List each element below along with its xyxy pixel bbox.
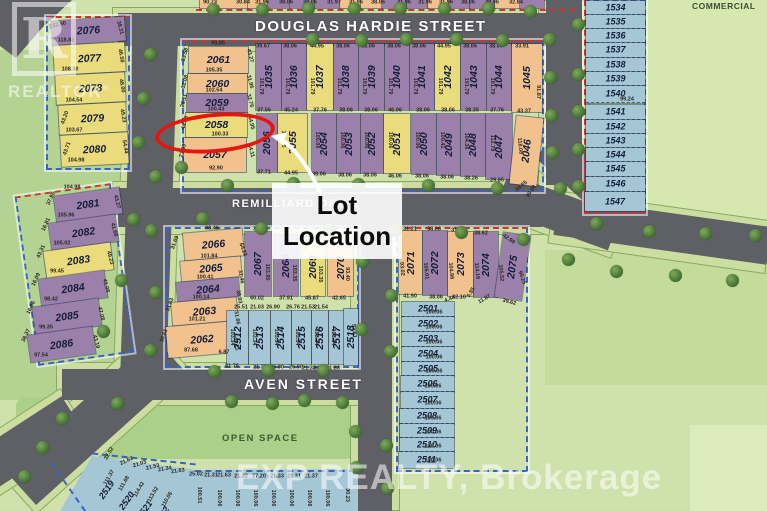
lot-location-line2: Location: [283, 221, 391, 252]
lot-location-line1: Lot: [317, 190, 357, 221]
plat-map: 2076207720782079208020812082208320842085…: [0, 0, 767, 511]
lot-location-callout: Lot Location: [272, 183, 402, 259]
